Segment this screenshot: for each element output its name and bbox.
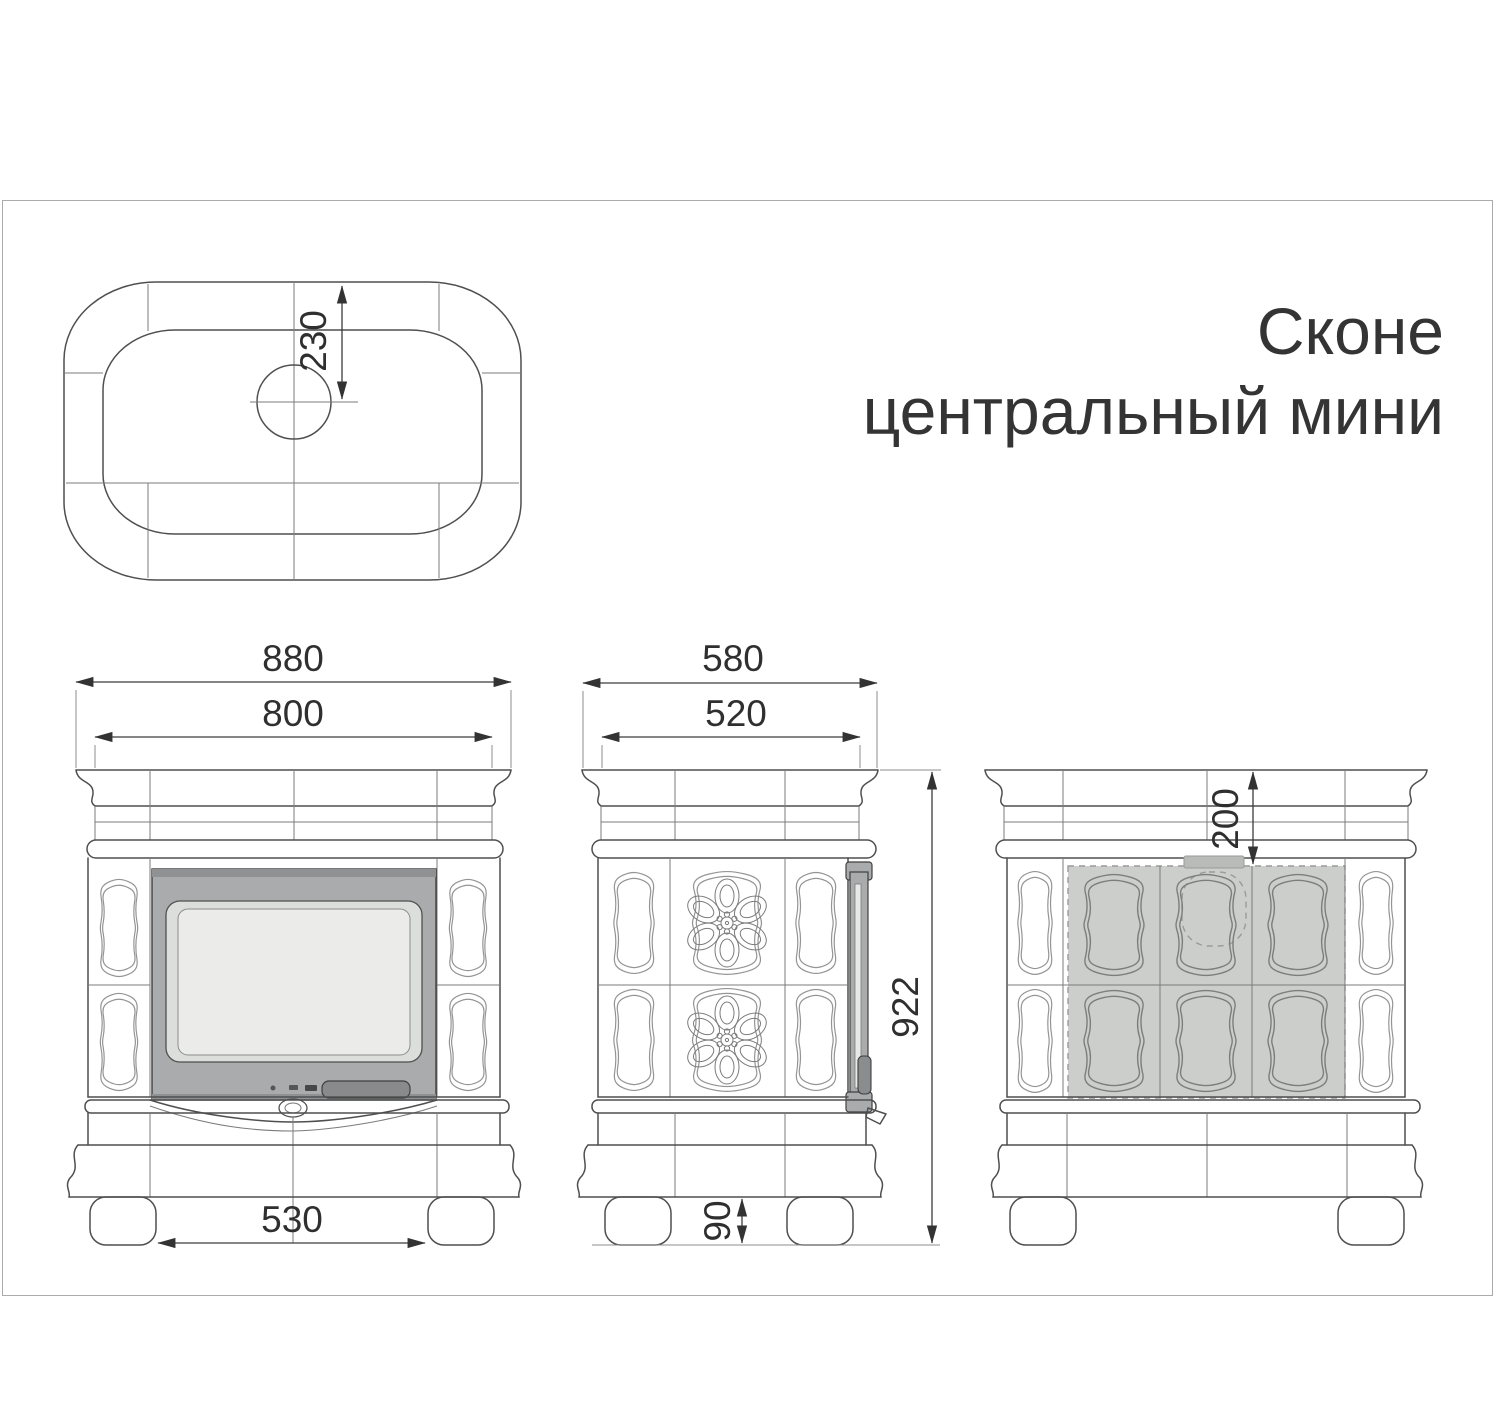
door-vent-slot [305,1085,317,1091]
door-handle[interactable] [322,1081,410,1098]
fireplace-door [152,869,436,1100]
dim-800-label: 800 [262,693,324,734]
back-view: 200 [985,770,1427,1245]
side-door-profile [846,862,886,1124]
door-indicator-dot [271,1086,276,1091]
flue-collar-tab [1184,856,1244,868]
screenshot: Сконе центральный мини [0,0,1500,1427]
dim-200-label: 200 [1205,788,1246,850]
side-right-foot [787,1197,853,1245]
removable-panel-area [1068,866,1345,1098]
dim-520: 520 [602,693,860,768]
side-view: 580 520 [578,638,941,1245]
dim-90: 90 [697,1199,742,1243]
dim-800: 800 [95,693,492,768]
front-right-foot [428,1197,494,1245]
side-left-foot [605,1197,671,1245]
dim-922-label: 922 [885,976,926,1038]
dim-520-label: 520 [705,693,767,734]
dim-200: 200 [1205,772,1253,864]
door-vent-slot [289,1085,298,1090]
top-view: 230 [64,282,521,580]
air-control-knob[interactable] [279,1099,307,1117]
side-cartouches [614,872,837,1092]
front-view: 880 800 [68,638,521,1245]
dim-530-label: 530 [261,1199,323,1240]
technical-drawing: 230 880 800 [0,0,1500,1427]
dim-530: 530 [158,1199,425,1243]
back-right-foot [1338,1197,1404,1245]
dim-580-label: 580 [702,638,764,679]
side-door-handle[interactable] [858,1056,871,1094]
door-glass [178,909,410,1055]
back-left-foot [1010,1197,1076,1245]
dim-90-label: 90 [697,1200,738,1241]
dim-880-label: 880 [262,638,324,679]
dim-922: 922 [880,770,941,1243]
dim-230-label: 230 [293,310,334,372]
front-left-foot [90,1197,156,1245]
dim-230: 230 [293,286,342,399]
